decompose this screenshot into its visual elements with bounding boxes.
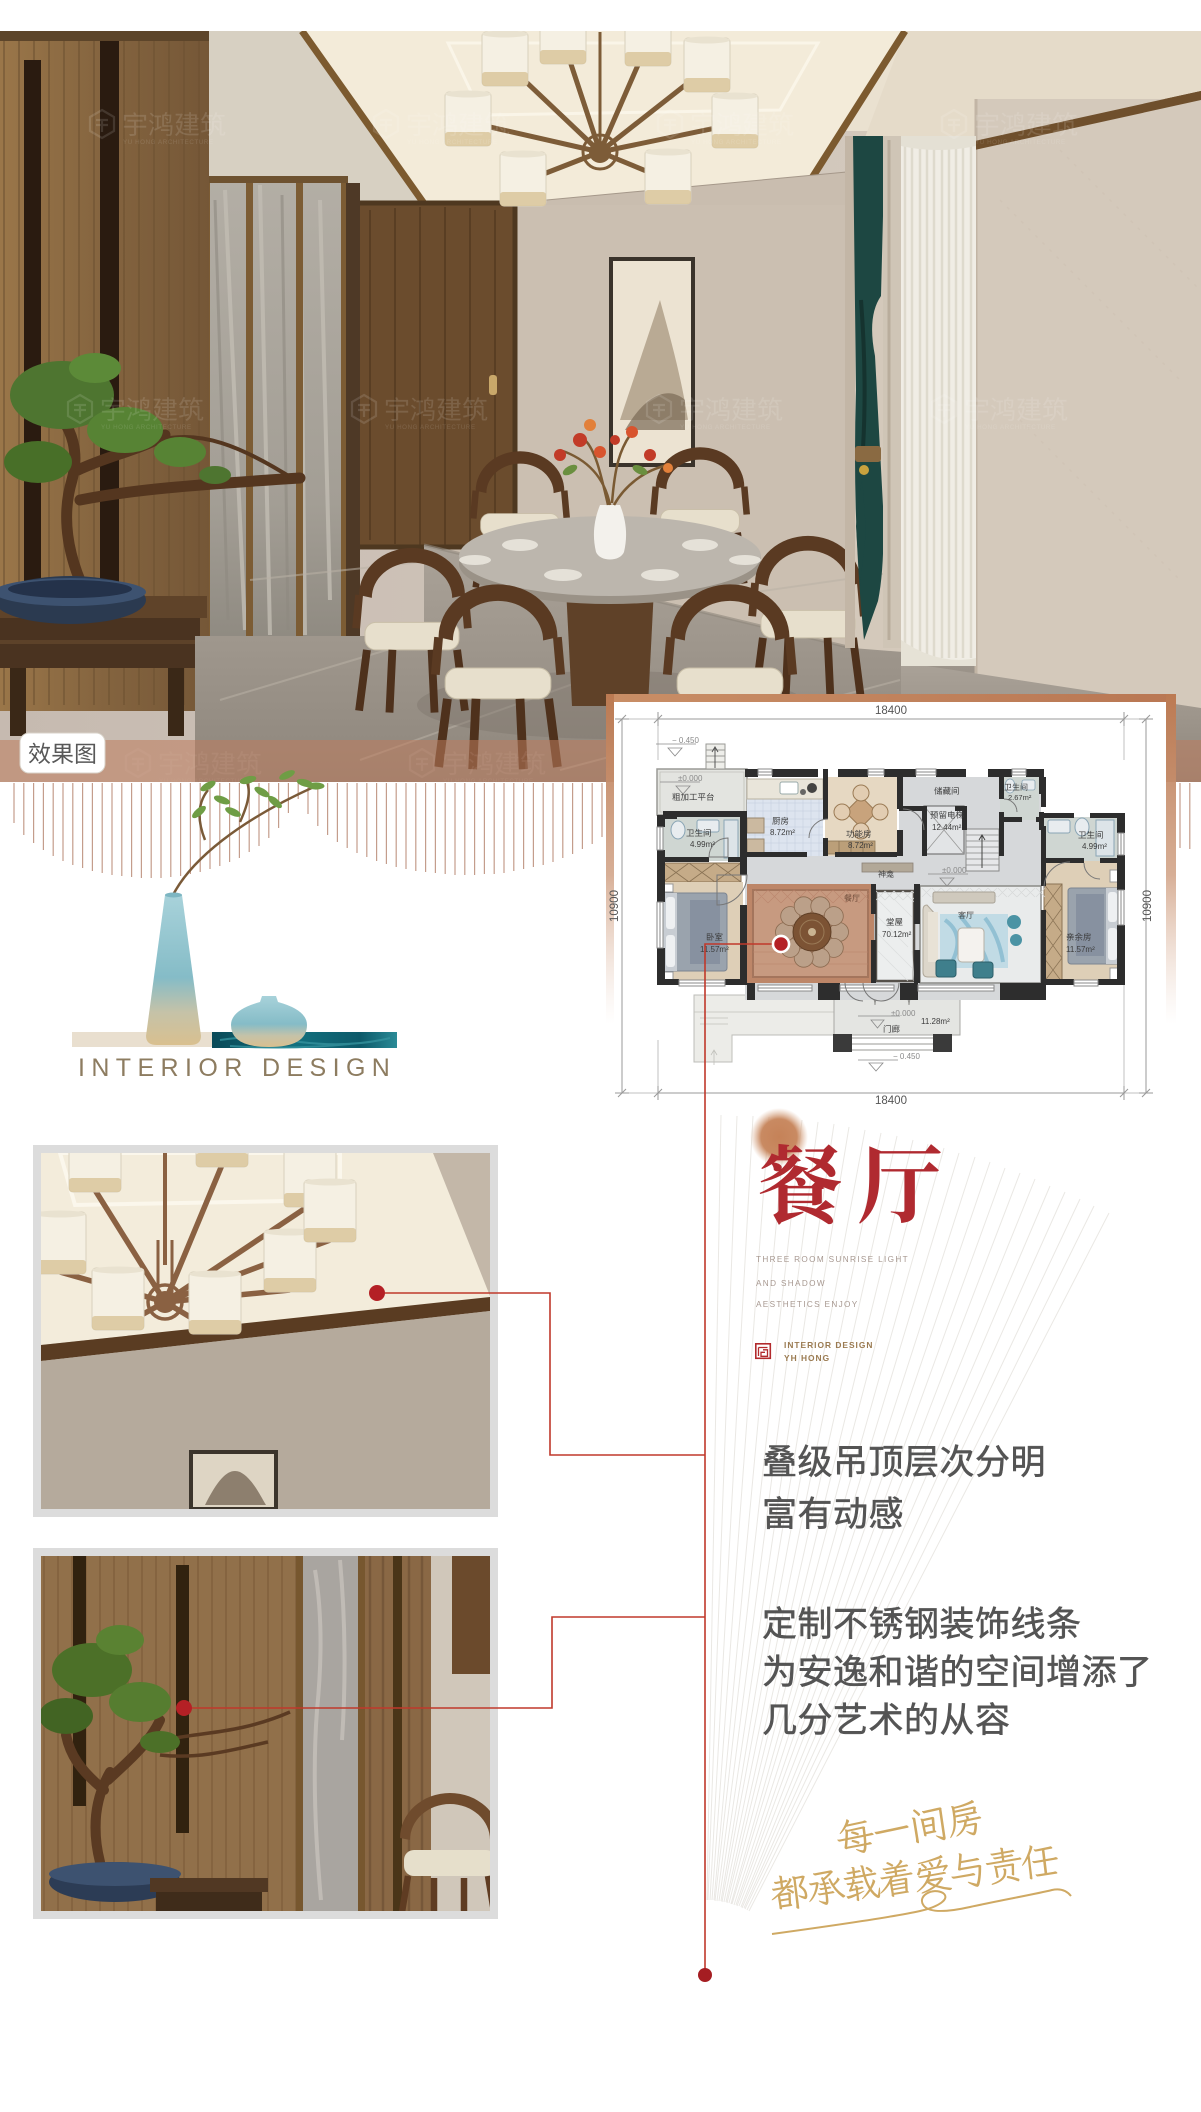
svg-text:YU HONG ARCHITECTURE: YU HONG ARCHITECTURE	[975, 139, 1066, 146]
svg-text:YH HONG: YH HONG	[784, 1353, 830, 1363]
svg-text:− 0.450: − 0.450	[672, 736, 699, 745]
svg-text:11.57m²: 11.57m²	[1066, 945, 1095, 954]
svg-text:INTERIOR DESIGN: INTERIOR DESIGN	[78, 1054, 396, 1082]
svg-text:8.72m²: 8.72m²	[770, 828, 795, 837]
svg-text:18400: 18400	[875, 705, 907, 717]
svg-text:YU HONG ARCHITECTURE: YU HONG ARCHITECTURE	[123, 139, 214, 146]
svg-text:YU HONG ARCHITECTURE: YU HONG ARCHITECTURE	[691, 139, 782, 146]
svg-text:±0.000: ±0.000	[942, 866, 967, 875]
svg-text:YU HONG ARCHITECTURE: YU HONG ARCHITECTURE	[385, 424, 476, 431]
svg-text:4.99m²: 4.99m²	[1082, 842, 1107, 851]
svg-text:AND SHADOW: AND SHADOW	[756, 1279, 826, 1288]
svg-text:− 0.450: − 0.450	[893, 1052, 920, 1061]
svg-text:±0.000: ±0.000	[678, 774, 703, 783]
svg-text:8.72m²: 8.72m²	[848, 841, 873, 850]
svg-text:4.99m²: 4.99m²	[690, 840, 715, 849]
svg-text:YU HONG ARCHITECTURE: YU HONG ARCHITECTURE	[965, 424, 1056, 431]
svg-text:18400: 18400	[875, 1095, 907, 1107]
svg-text:YU HONG ARCHITECTURE: YU HONG ARCHITECTURE	[680, 424, 771, 431]
svg-text:11.28m²: 11.28m²	[921, 1017, 950, 1026]
svg-text:12.44m²: 12.44m²	[932, 823, 962, 832]
svg-text:AESTHETICS ENJOY: AESTHETICS ENJOY	[756, 1300, 859, 1309]
svg-text:10900: 10900	[1142, 890, 1154, 922]
svg-text:YU HONG ARCHITECTURE: YU HONG ARCHITECTURE	[407, 139, 498, 146]
svg-text:10900: 10900	[609, 890, 621, 922]
svg-text:THREE ROOM SUNRISE LIGHT: THREE ROOM SUNRISE LIGHT	[756, 1255, 909, 1264]
svg-text:±0.000: ±0.000	[891, 1009, 916, 1018]
svg-text:INTERIOR DESIGN: INTERIOR DESIGN	[784, 1340, 873, 1350]
svg-text:YU HONG ARCHITECTURE: YU HONG ARCHITECTURE	[101, 424, 192, 431]
svg-text:2.67m²: 2.67m²	[1008, 793, 1032, 802]
svg-text:70.12m²: 70.12m²	[882, 930, 912, 939]
